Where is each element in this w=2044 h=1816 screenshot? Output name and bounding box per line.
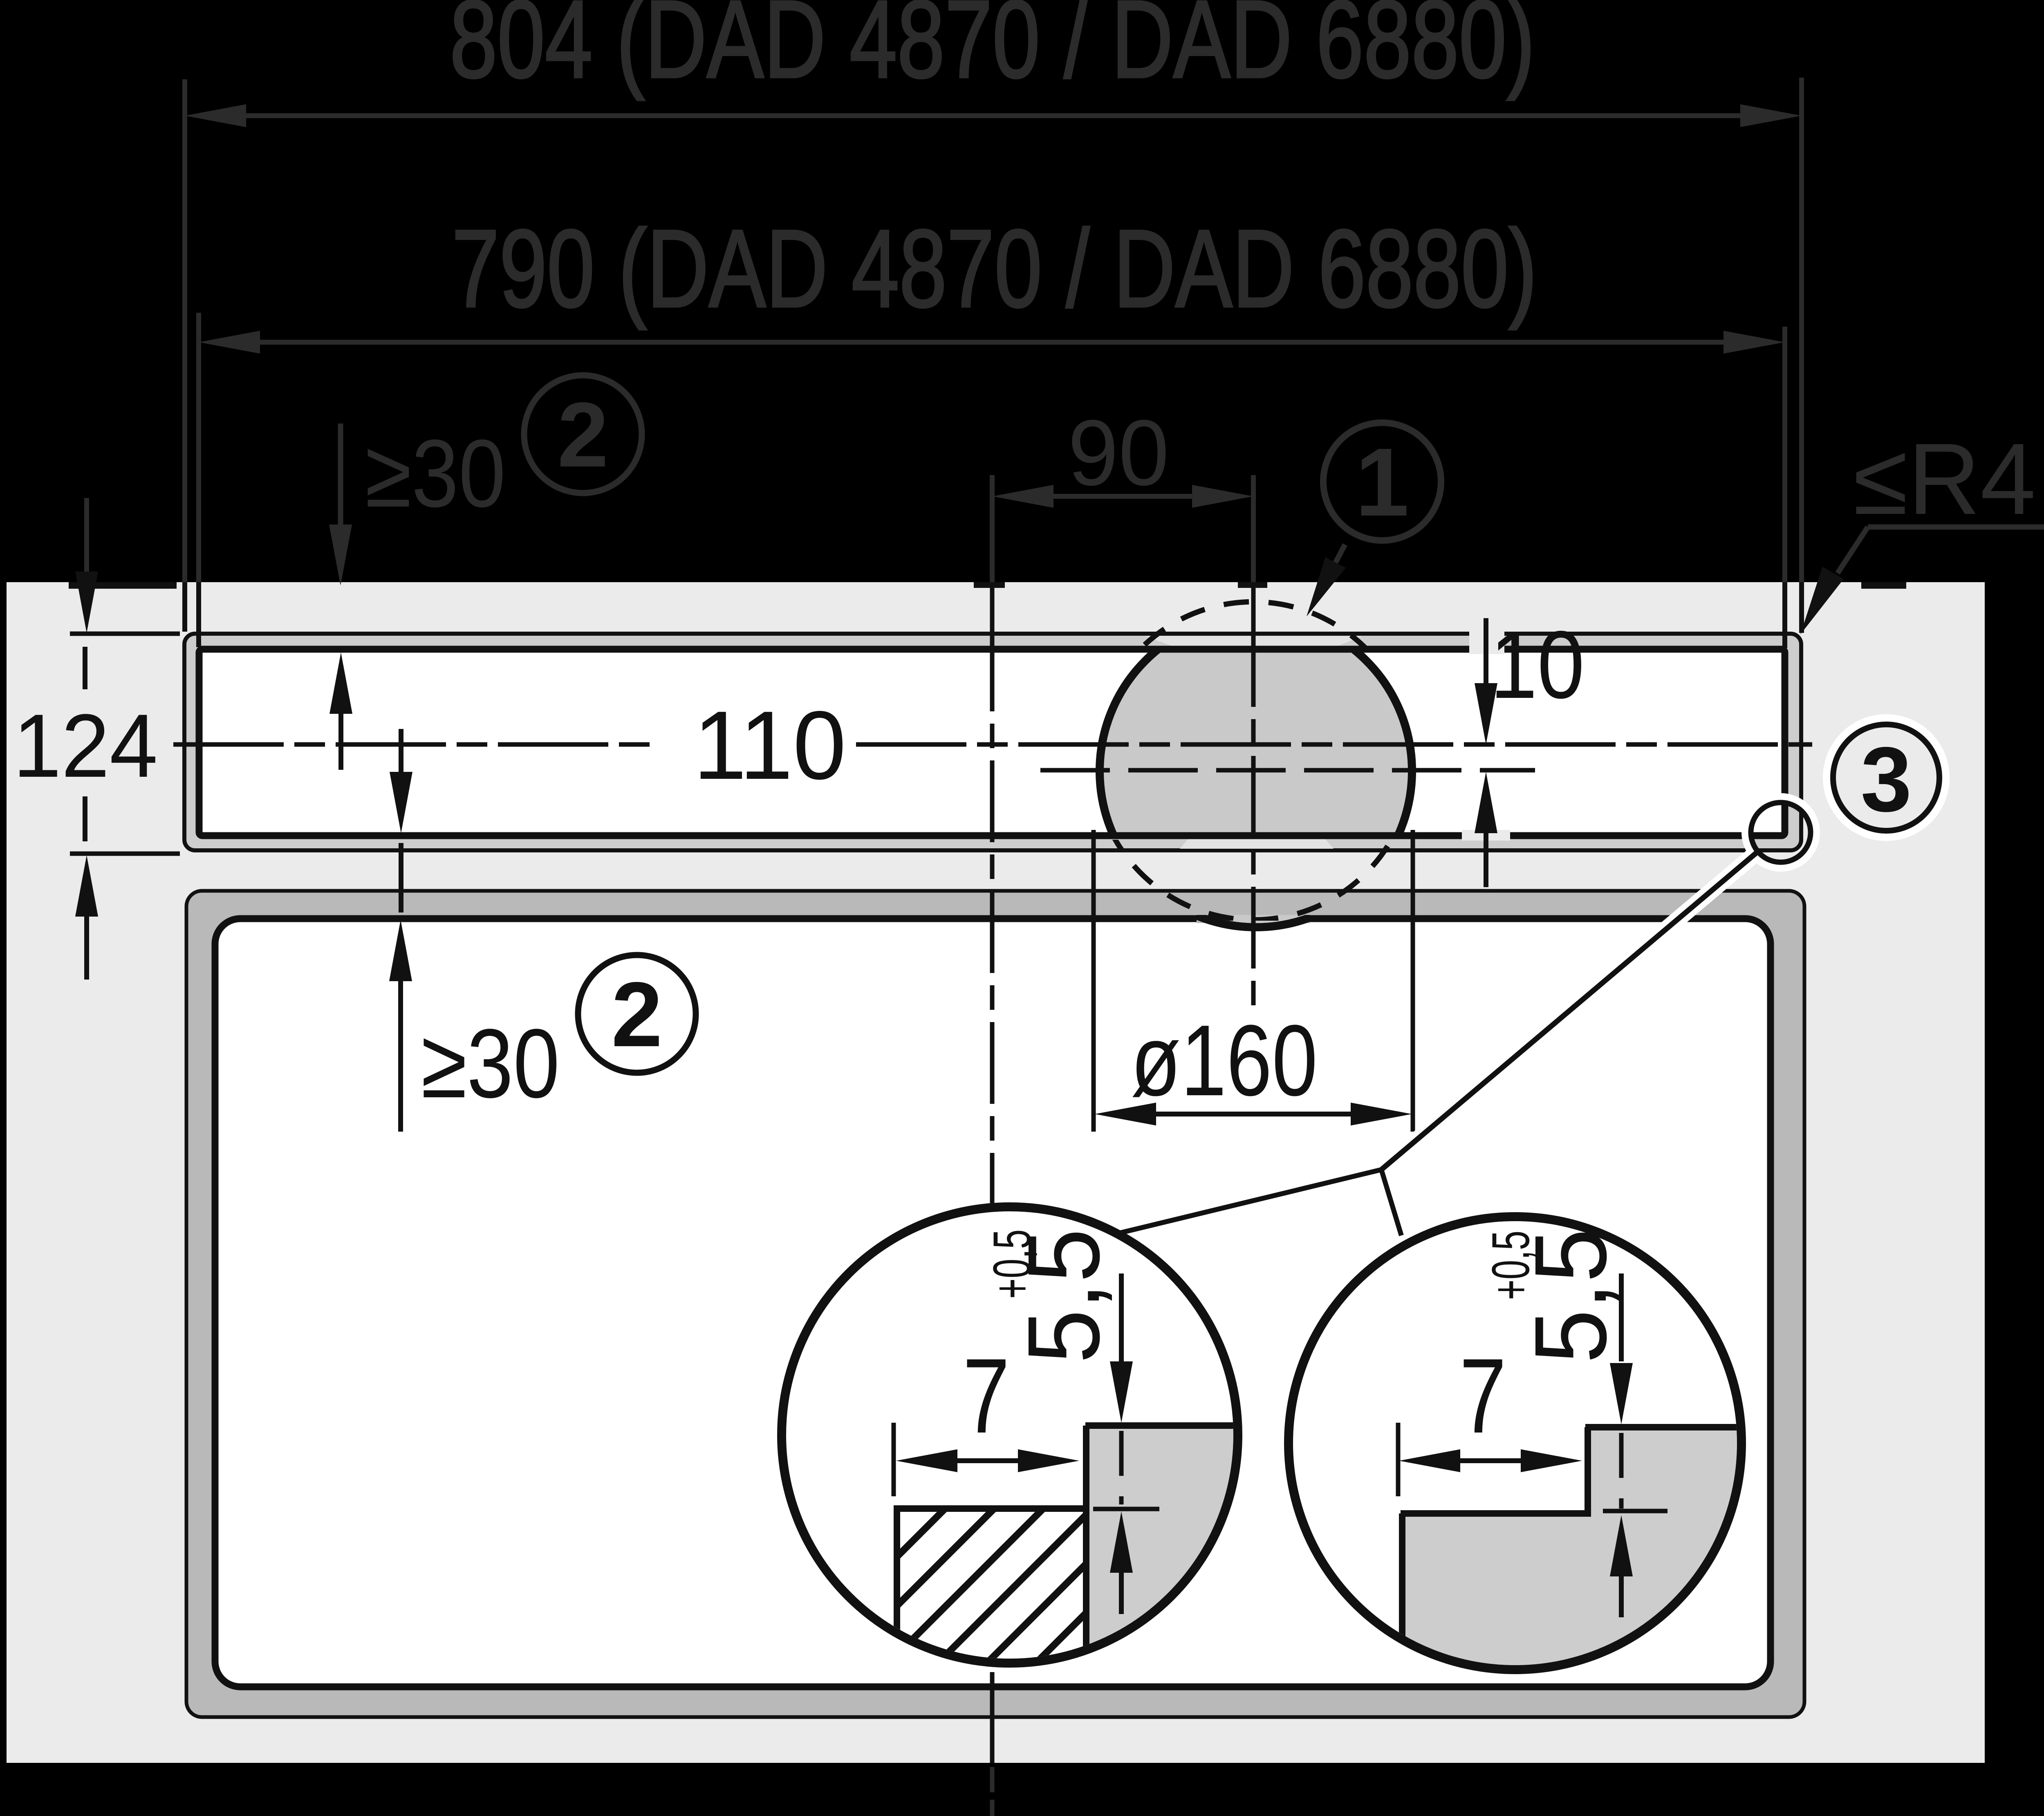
svg-text:90: 90 [1068, 401, 1169, 505]
svg-text:3: 3 [1860, 728, 1912, 831]
svg-text:ø160: ø160 [1131, 1004, 1318, 1117]
svg-text:≤R4: ≤R4 [1853, 422, 2036, 536]
svg-text:7: 7 [1459, 1337, 1506, 1455]
svg-text:790 (DAD 4870 / DAD 6880): 790 (DAD 4870 / DAD 6880) [452, 207, 1537, 331]
svg-text:1: 1 [1355, 428, 1409, 536]
svg-text:+0,5: +0,5 [1481, 1231, 1540, 1300]
svg-text:110: 110 [693, 691, 846, 800]
svg-text:124: 124 [13, 695, 158, 796]
svg-text:804 (DAD 4870 / DAD 6880): 804 (DAD 4870 / DAD 6880) [450, 0, 1535, 101]
svg-text:≥30: ≥30 [421, 1009, 560, 1118]
svg-text:2: 2 [557, 383, 608, 486]
svg-text:≥30: ≥30 [365, 419, 506, 527]
svg-text:7: 7 [963, 1337, 1010, 1455]
svg-text:+0,5: +0,5 [982, 1229, 1042, 1299]
svg-text:10: 10 [1490, 611, 1585, 718]
svg-text:2: 2 [611, 963, 662, 1066]
